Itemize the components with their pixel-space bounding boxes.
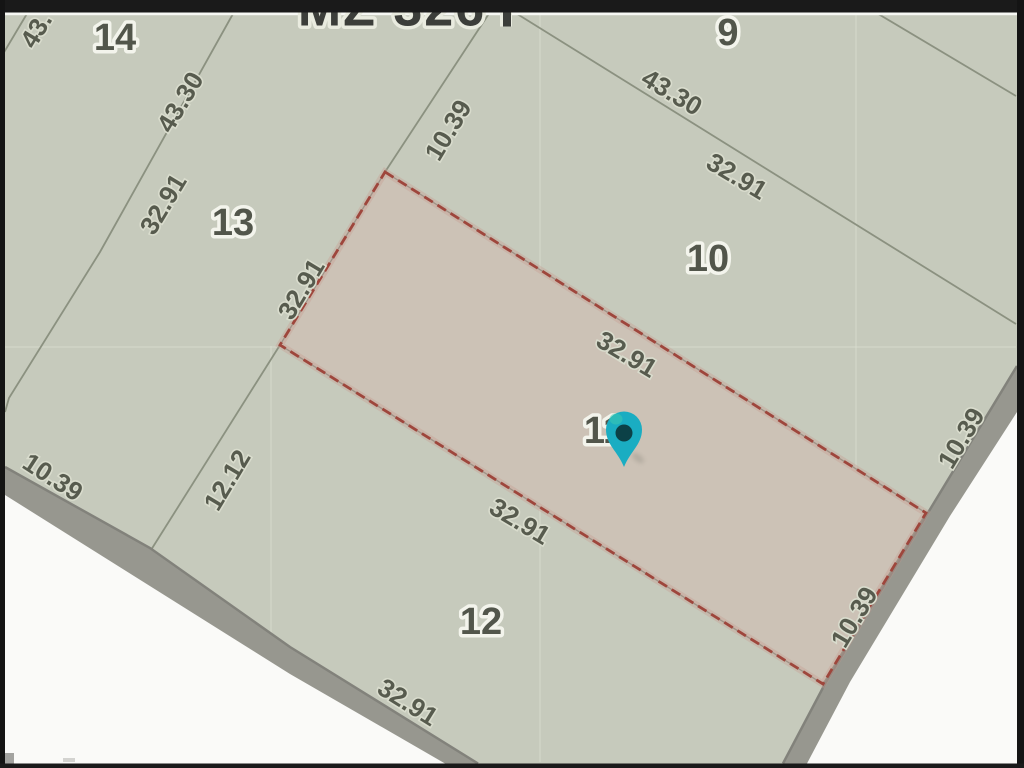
svg-text:12: 12 bbox=[460, 601, 502, 643]
svg-text:13: 13 bbox=[212, 202, 254, 244]
svg-text:10: 10 bbox=[687, 238, 729, 280]
svg-text:14: 14 bbox=[94, 17, 136, 59]
svg-text:9: 9 bbox=[717, 12, 738, 54]
